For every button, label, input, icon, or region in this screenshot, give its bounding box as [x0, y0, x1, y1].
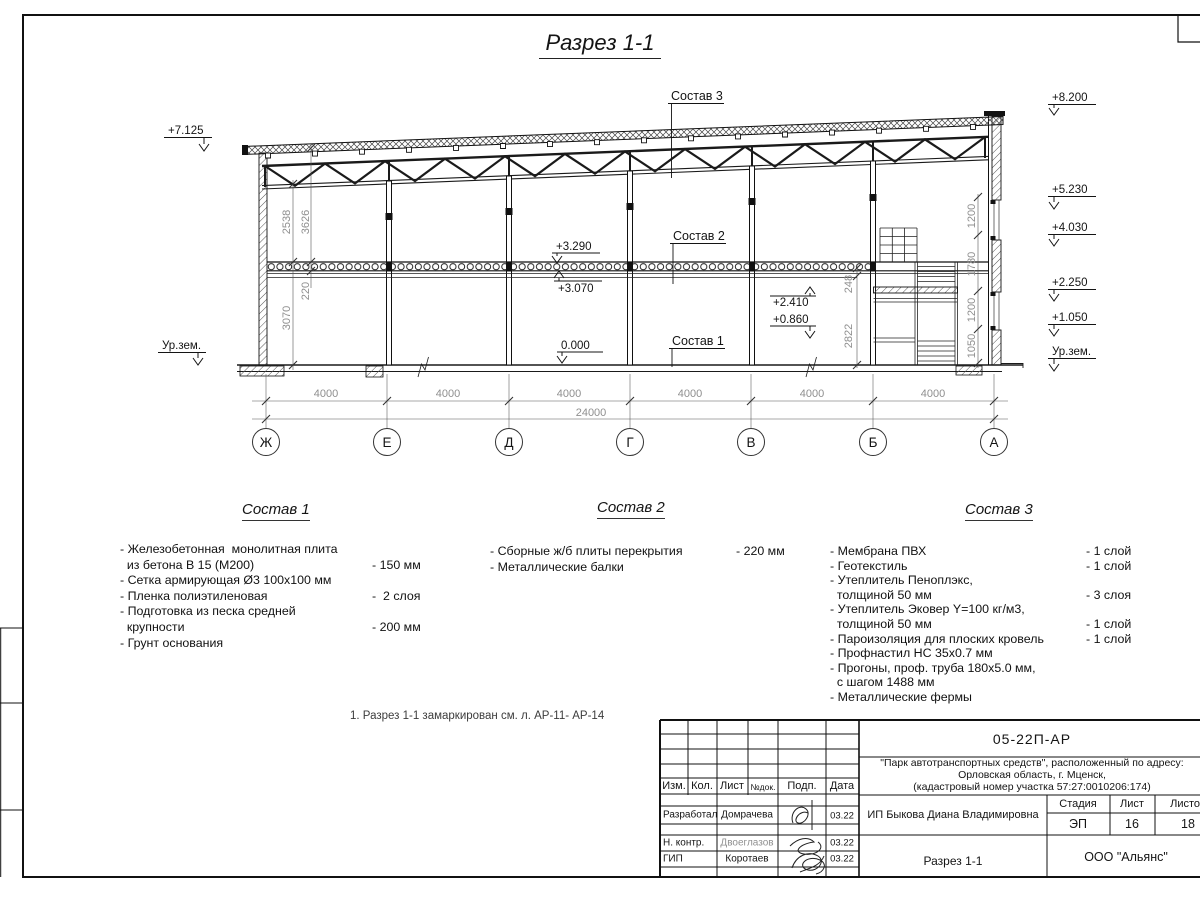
composition-row: - Грунт основания [120, 636, 436, 652]
composition-row: с шагом 1488 мм [830, 675, 1150, 690]
composition-item-text: - Металлические фермы [830, 690, 1086, 705]
composition-item-text: - Металлические балки [490, 559, 736, 575]
composition-item-text: с шагом 1488 мм [830, 675, 1086, 690]
composition-item-value [372, 636, 436, 652]
bay-dim-3: 4000 [678, 388, 702, 400]
bay-dim-0: 4000 [314, 388, 338, 400]
dim-2538: 2538 [281, 210, 293, 234]
bay-dim-1: 4000 [436, 388, 460, 400]
elev-slab-bottom: +3.070 [558, 283, 594, 295]
tb-date-1: 03.22 [830, 811, 854, 822]
dim-3070: 3070 [281, 306, 293, 330]
composition-2-list: - Сборные ж/б плиты перекрытия - 220 мм … [490, 543, 800, 575]
tb-role-nkontr: Н. контр. [663, 838, 704, 849]
composition-3-list: - Мембрана ПВХ - 1 слой - Геотекстиль - … [830, 544, 1150, 705]
composition-row: толщиной 50 мм - 3 слоя [830, 588, 1150, 603]
tb-stage-value: ЭП [1069, 817, 1087, 831]
composition-3-title: Состав 3 [965, 501, 1033, 521]
composition-2-title: Состав 2 [597, 499, 665, 519]
elev-slab-top: +3.290 [556, 241, 592, 253]
roof-deck [243, 117, 1003, 155]
composition-item-value [372, 542, 436, 558]
elev-right-0: +8.200 [1052, 92, 1088, 104]
margin-stamp-boxes [0, 628, 23, 877]
axis-label-g: Г [626, 435, 634, 450]
composition-row: толщиной 50 мм - 1 слой [830, 617, 1150, 632]
composition-row: - Утеплитель Эковер Y=100 кг/м3, [830, 602, 1150, 617]
composition-item-value: - 1 слой [1086, 632, 1150, 647]
composition-item-value [1086, 602, 1150, 617]
elev-right-5: Ур.зем. [1052, 346, 1091, 358]
axis-label-a: А [989, 435, 998, 450]
tb-drawing-name: Разрез 1-1 [924, 854, 983, 868]
bay-dim-4: 4000 [800, 388, 824, 400]
composition-row: - Металлические фермы [830, 690, 1150, 705]
elev-right-3: +2.250 [1052, 277, 1088, 289]
composition-item-value: - 1 слой [1086, 544, 1150, 559]
composition-item-value [372, 604, 436, 620]
signature-korotaev [790, 839, 824, 874]
tb-doc-code: 05-22П-АР [993, 731, 1071, 747]
composition-item-text: - Сборные ж/б плиты перекрытия [490, 543, 736, 559]
composition-item-text: - Утеплитель Пеноплэкс, [830, 573, 1086, 588]
right-wall [984, 111, 1005, 365]
stair-flight-upper [918, 267, 956, 282]
dim-3626: 3626 [300, 210, 312, 234]
composition-item-value [1086, 690, 1150, 705]
composition-row: - Пароизоляция для плоских кровель - 1 с… [830, 632, 1150, 647]
tb-name-domracheva: Домрачева [721, 810, 773, 821]
signature-domracheva [792, 800, 812, 830]
tb-col-izm: Изм. [662, 780, 686, 792]
elev-stair-upper: +2.410 [773, 297, 809, 309]
footing-hatch [240, 366, 284, 376]
composition-item-text: толщиной 50 мм [830, 617, 1086, 632]
composition-row: - Прогоны, проф. труба 180х5.0 мм, [830, 661, 1150, 676]
composition-item-text: - Подготовка из песка средней [120, 604, 372, 620]
dim-220: 220 [300, 282, 312, 300]
composition-item-text: из бетона В 15 (М200) [120, 558, 372, 574]
composition-item-text: - Профнастил НС 35х0.7 мм [830, 646, 1086, 661]
composition-item-text: толщиной 50 мм [830, 588, 1086, 603]
axis-label-e: Е [382, 435, 391, 450]
composition-item-value [1086, 573, 1150, 588]
building-section [237, 111, 1023, 377]
callout-sostav-3: Состав 3 [671, 89, 723, 103]
sheet-frame [0, 15, 1200, 877]
composition-item-value: - 1 слой [1086, 617, 1150, 632]
tb-project-line-3: (кадастровый номер участка 57:27:0010206… [913, 781, 1150, 793]
drawing-sheet: 2538 3626 220 3070 1200 1780 1200 1050 2… [0, 0, 1200, 900]
hollow-core-circles [267, 263, 873, 271]
tb-col-podp: Подп. [787, 780, 816, 792]
composition-row: - Подготовка из песка средней [120, 604, 436, 620]
tb-sheets-value: 18 [1181, 817, 1195, 831]
footing-hatch [366, 366, 383, 377]
elev-left-roof: +7.125 [168, 125, 204, 137]
dim-2822: 2822 [843, 324, 855, 348]
tb-col-kol: Кол. [691, 780, 713, 792]
composition-item-value: - 220 мм [736, 543, 800, 559]
dim-248: 248 [843, 275, 855, 293]
composition-item-value [1086, 675, 1150, 690]
composition-row: - Сборные ж/б плиты перекрытия - 220 мм [490, 543, 800, 559]
composition-item-value [736, 559, 800, 575]
composition-row: - Утеплитель Пеноплэкс, [830, 573, 1150, 588]
composition-item-value [1086, 661, 1150, 676]
bay-dim-5: 4000 [921, 388, 945, 400]
dim-1200-top: 1200 [966, 204, 978, 228]
tb-role-razrabotal: Разработал [663, 810, 717, 821]
composition-item-value: - 3 слоя [1086, 588, 1150, 603]
tb-project-line-1: "Парк автотранспортных средств", располо… [880, 757, 1183, 769]
stair-stringers [915, 262, 958, 365]
composition-item-text: - Геотекстиль [830, 559, 1086, 574]
elev-right-4: +1.050 [1052, 312, 1088, 324]
tb-project-line-2: Орловская область, г. Мценск, [958, 769, 1106, 781]
signatures [790, 800, 824, 874]
parapet-cap [984, 111, 1005, 116]
callout-sostav-2: Состав 2 [673, 229, 725, 243]
axis-label-v: В [746, 435, 755, 450]
tb-role-gip: ГИП [663, 854, 683, 865]
slab-break-mark [418, 357, 817, 377]
axis-label-b: Б [869, 435, 878, 450]
composition-item-text: - Железобетонная монолитная плита [120, 542, 372, 558]
elev-right-2: +4.030 [1052, 222, 1088, 234]
composition-item-text: - Прогоны, проф. труба 180х5.0 мм, [830, 661, 1086, 676]
tb-sheets-label: Листов [1170, 798, 1200, 810]
dim-1050: 1050 [966, 334, 978, 358]
drawing-note: 1. Разрез 1-1 замаркирован см. л. АР-11-… [350, 710, 604, 722]
tb-sheet-label: Лист [1120, 798, 1144, 810]
composition-item-text: - Пароизоляция для плоских кровель [830, 632, 1086, 647]
composition-item-text: крупности [120, 620, 372, 636]
axis-label-zh: Ж [260, 435, 273, 450]
composition-row: - Профнастил НС 35х0.7 мм [830, 646, 1150, 661]
composition-row: - Геотекстиль - 1 слой [830, 559, 1150, 574]
composition-item-text: - Грунт основания [120, 636, 372, 652]
staircase [874, 228, 958, 365]
composition-row: - Сетка армирующая Ø3 100х100 мм [120, 573, 436, 589]
composition-item-text: - Пленка полиэтиленовая [120, 589, 372, 605]
elev-stair-lower: +0.860 [773, 314, 809, 326]
composition-row: крупности - 200 мм [120, 620, 436, 636]
stair-railing-grid [880, 228, 917, 262]
dim-1780: 1780 [966, 252, 978, 276]
tb-name-korotaev: Коротаев [725, 854, 768, 865]
composition-row: - Железобетонная монолитная плита [120, 542, 436, 558]
tb-col-list: Лист [720, 780, 744, 792]
composition-row: - Пленка полиэтиленовая - 2 слоя [120, 589, 436, 605]
tb-sheet-value: 16 [1125, 817, 1139, 831]
composition-item-value: - 150 мм [372, 558, 436, 574]
dim-1200-bottom: 1200 [966, 298, 978, 322]
stair-flight-lower [918, 341, 956, 361]
composition-item-text: - Сетка армирующая Ø3 100х100 мм [120, 573, 372, 589]
roof-edge-plate [242, 145, 248, 155]
composition-1-list: - Железобетонная монолитная плита из бет… [120, 542, 436, 651]
composition-item-value [372, 573, 436, 589]
composition-row: из бетона В 15 (М200) - 150 мм [120, 558, 436, 574]
callout-sostav-1: Состав 1 [672, 334, 724, 348]
bay-dim-2: 4000 [557, 388, 581, 400]
composition-row: - Мембрана ПВХ - 1 слой [830, 544, 1150, 559]
tb-client: ИП Быкова Диана Владимировна [867, 809, 1038, 821]
sheet-title-wrap: Разрез 1-1 [0, 30, 1200, 56]
composition-item-value: - 200 мм [372, 620, 436, 636]
tb-date-3: 03.22 [830, 854, 854, 865]
sheet-title: Разрез 1-1 [539, 30, 660, 59]
composition-item-value: - 1 слой [1086, 559, 1150, 574]
tb-company: ООО "Альянс" [1084, 850, 1168, 864]
tb-date-2: 03.22 [830, 838, 854, 849]
composition-item-value: - 2 слоя [372, 589, 436, 605]
tb-stage-label: Стадия [1059, 798, 1097, 810]
elev-ground-left: Ур.зем. [162, 340, 201, 352]
stair-landing [874, 287, 958, 293]
composition-item-value [1086, 646, 1150, 661]
composition-row: - Металлические балки [490, 559, 800, 575]
tb-col-data: Дата [830, 780, 854, 792]
composition-1-title: Состав 1 [242, 501, 310, 521]
elev-right-1: +5.230 [1052, 184, 1088, 196]
elev-zero: 0.000 [561, 340, 590, 352]
axis-label-d: Д [504, 435, 513, 450]
tb-name-dvoeglazov: Двоеглазов [720, 838, 773, 849]
dim-ticks [289, 144, 982, 369]
composition-item-text: - Мембрана ПВХ [830, 544, 1086, 559]
total-dim: 24000 [576, 407, 607, 419]
composition-item-text: - Утеплитель Эковер Y=100 кг/м3, [830, 602, 1086, 617]
tb-col-ndok: №док. [751, 782, 776, 792]
